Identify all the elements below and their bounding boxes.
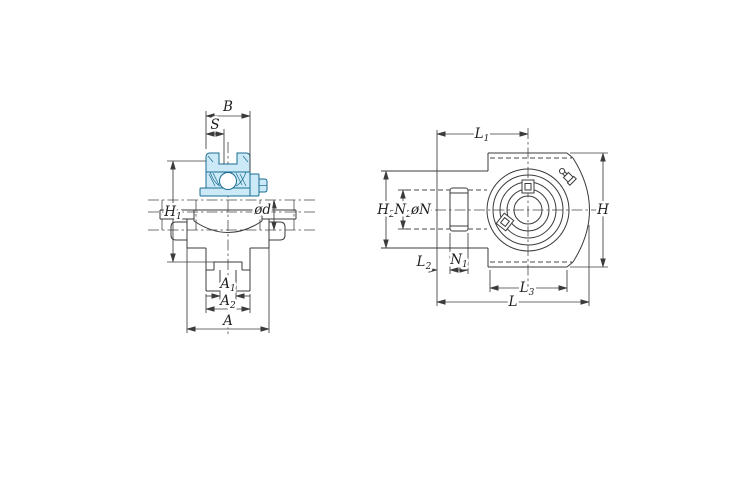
set-screw-lower xyxy=(496,213,513,231)
dim-label-od: ød xyxy=(253,202,271,218)
dim-od: ød xyxy=(253,200,274,230)
front-view: B S H1 ød A1 xyxy=(148,99,316,336)
dim-n2: N2 xyxy=(393,190,412,229)
dim-label-h: H xyxy=(596,202,609,218)
takeup-housing-side xyxy=(381,130,590,306)
dim-label-on: øN xyxy=(410,202,432,218)
dim-label-h2: H2 xyxy=(376,202,395,220)
dim-l1: L1 xyxy=(437,126,528,144)
dim-on: øN xyxy=(410,202,432,218)
dim-label-n2: N2 xyxy=(393,202,412,220)
dim-label-l1: L1 xyxy=(474,126,490,144)
dim-n1: N1 xyxy=(449,233,468,274)
dim-label-l3: L3 xyxy=(519,280,535,298)
locking-collar xyxy=(250,174,259,196)
dim-label-a: A xyxy=(221,313,233,329)
dim-label-b: B xyxy=(222,99,233,115)
dim-h2: H2 xyxy=(376,171,395,248)
dim-label-s: S xyxy=(210,117,219,133)
dim-label-h1: H1 xyxy=(163,204,182,222)
dim-l2: L2 xyxy=(416,254,437,272)
dim-l3: L3 xyxy=(490,270,567,298)
dim-label-l: L xyxy=(508,294,518,310)
dim-label-l2: L2 xyxy=(416,254,432,272)
dim-label-a1: A1 xyxy=(218,276,235,294)
bearing-insert xyxy=(200,153,267,196)
bearing-ball xyxy=(220,173,237,190)
grease-fitting xyxy=(557,166,576,185)
technical-drawing: B S H1 ød A1 xyxy=(0,0,750,500)
side-view: L1 H H2 N2 øN L2 xyxy=(376,126,609,310)
drawing-canvas: B S H1 ød A1 xyxy=(0,0,750,500)
dim-label-n1: N1 xyxy=(449,252,468,270)
set-screw-top xyxy=(522,180,534,193)
dim-label-a2: A2 xyxy=(218,293,236,311)
